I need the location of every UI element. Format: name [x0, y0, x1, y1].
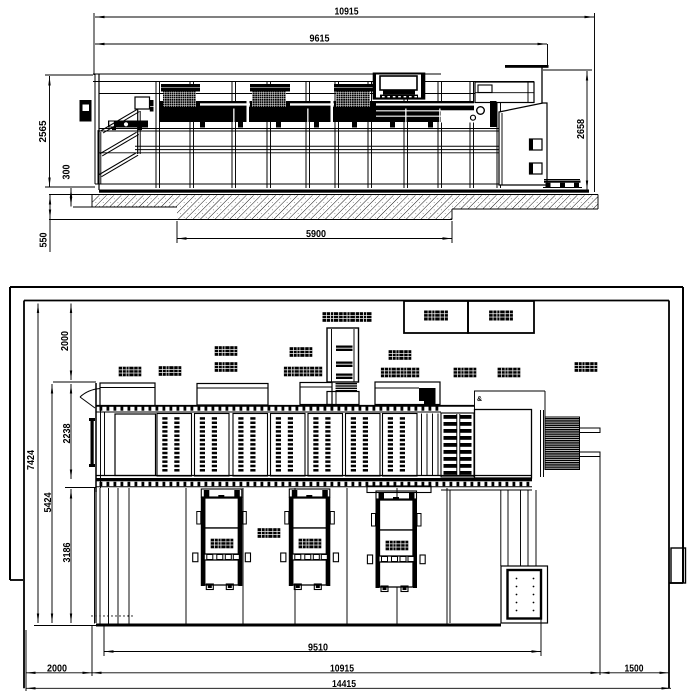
- svg-text:550: 550: [39, 232, 50, 247]
- svg-text:2565: 2565: [38, 120, 49, 142]
- svg-text:9510: 9510: [308, 643, 328, 654]
- svg-text:10915: 10915: [335, 7, 359, 18]
- svg-text:2000: 2000: [60, 331, 71, 351]
- svg-text:14415: 14415: [332, 679, 356, 690]
- svg-text:2658: 2658: [576, 119, 587, 139]
- svg-text:9615: 9615: [310, 34, 330, 45]
- svg-text:10915: 10915: [330, 663, 354, 674]
- svg-text:5424: 5424: [43, 492, 54, 512]
- svg-text:3186: 3186: [62, 542, 73, 562]
- svg-text:300: 300: [62, 164, 73, 179]
- svg-text:&: &: [477, 396, 482, 403]
- svg-text:2238: 2238: [62, 423, 73, 443]
- svg-text:1500: 1500: [625, 663, 644, 674]
- svg-text:2000: 2000: [47, 663, 67, 674]
- svg-text:5900: 5900: [306, 229, 326, 240]
- svg-text:7424: 7424: [26, 450, 37, 470]
